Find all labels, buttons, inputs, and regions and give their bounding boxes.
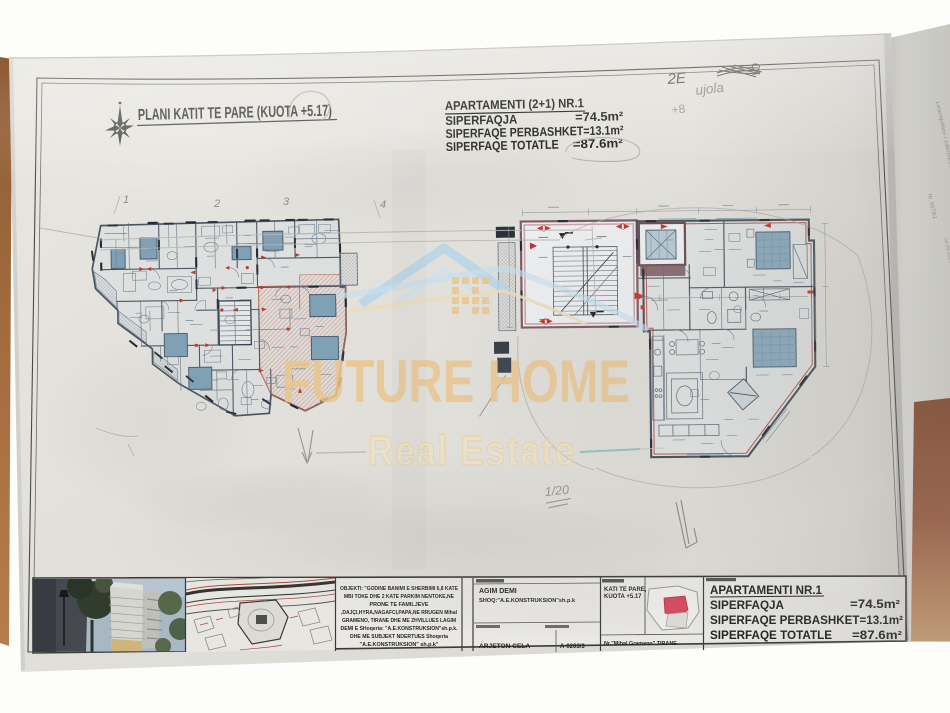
svg-text:2: 2: [213, 198, 220, 210]
svg-text:1/20: 1/20: [544, 483, 570, 499]
svg-text:+8: +8: [671, 102, 686, 117]
svg-text:SHOQ:"A.E.KONSTRUKSION"sh.p.k: SHOQ:"A.E.KONSTRUKSION"sh.p.k: [479, 598, 576, 604]
svg-text:DHE ME SUBJEKT NDERTUES Shoqe: DHE ME SUBJEKT NDERTUES Shoqeria: [350, 634, 449, 640]
svg-text:=74.5m²: =74.5m²: [575, 109, 623, 124]
svg-text:4: 4: [380, 199, 386, 211]
svg-text:=87.6m²: =87.6m²: [852, 630, 902, 642]
svg-text:AGIM DEMI: AGIM DEMI: [479, 588, 517, 595]
svg-text:APARTAMENTI NR.1: APARTAMENTI NR.1: [710, 583, 822, 597]
svg-text:1: 1: [123, 194, 129, 206]
svg-text:KATI TE PARE,: KATI TE PARE,: [604, 587, 647, 593]
svg-text:3: 3: [283, 196, 290, 208]
svg-text:,DAJÇI,HYRA,NAGAFCI,PAPA,NE RR: ,DAJÇI,HYRA,NAGAFCI,PAPA,NE RRUGEN Mihal: [341, 610, 457, 616]
svg-text:SIPERFAQE TOTATLE: SIPERFAQE TOTATLE: [710, 628, 832, 642]
svg-text:DEMI E SHoqeria: "A.E.KONSTRUK: DEMI E SHoqeria: "A.E.KONSTRUKSION"sh.p.…: [341, 626, 458, 632]
svg-text:SIPERFAQJA: SIPERFAQJA: [710, 598, 784, 612]
svg-text:Nr."Mihal Grameno",TIRANE: Nr."Mihal Grameno",TIRANE: [604, 641, 677, 647]
svg-text:A-0203/3: A-0203/3: [560, 644, 585, 650]
svg-text:ARJETON CELA: ARJETON CELA: [479, 643, 530, 650]
svg-text:PRONE TE FAMILJEVE: PRONE TE FAMILJEVE: [369, 602, 428, 608]
svg-text:MBI TOKE DHE 2 KATE PARKIM NEN: MBI TOKE DHE 2 KATE PARKIM NENTOKE,NE: [344, 594, 454, 600]
svg-text:KUOTA +5.17: KUOTA +5.17: [604, 594, 642, 600]
svg-text:SIPERFAQE TOTATLE: SIPERFAQE TOTATLE: [446, 138, 559, 154]
svg-text:"A.E.KONSTRUKSION" sh.p.k": "A.E.KONSTRUKSION" sh.p.k": [360, 642, 439, 648]
svg-text:APARTAMENTI (2+1) NR.1: APARTAMENTI (2+1) NR.1: [445, 96, 584, 113]
svg-text:Real Estate: Real Estate: [368, 427, 576, 474]
svg-text:2E: 2E: [666, 70, 687, 88]
svg-text:=74.5m²: =74.5m²: [850, 599, 900, 611]
svg-text:OBJEKTI: "GODINE BANIMI E SHE: OBJEKTI: "GODINE BANIMI E SHERBIMI 6,8 K…: [340, 586, 458, 592]
svg-text:FUTURE HOME: FUTURE HOME: [282, 348, 630, 415]
svg-text:SIPERFAQE PERBASHKET=13.1m²: SIPERFAQE PERBASHKET=13.1m²: [710, 613, 903, 627]
svg-text:GRAMENO, TIRANE DHE ME ZHVILLU: GRAMENO, TIRANE DHE ME ZHVILLUES LAGIM: [342, 618, 456, 624]
